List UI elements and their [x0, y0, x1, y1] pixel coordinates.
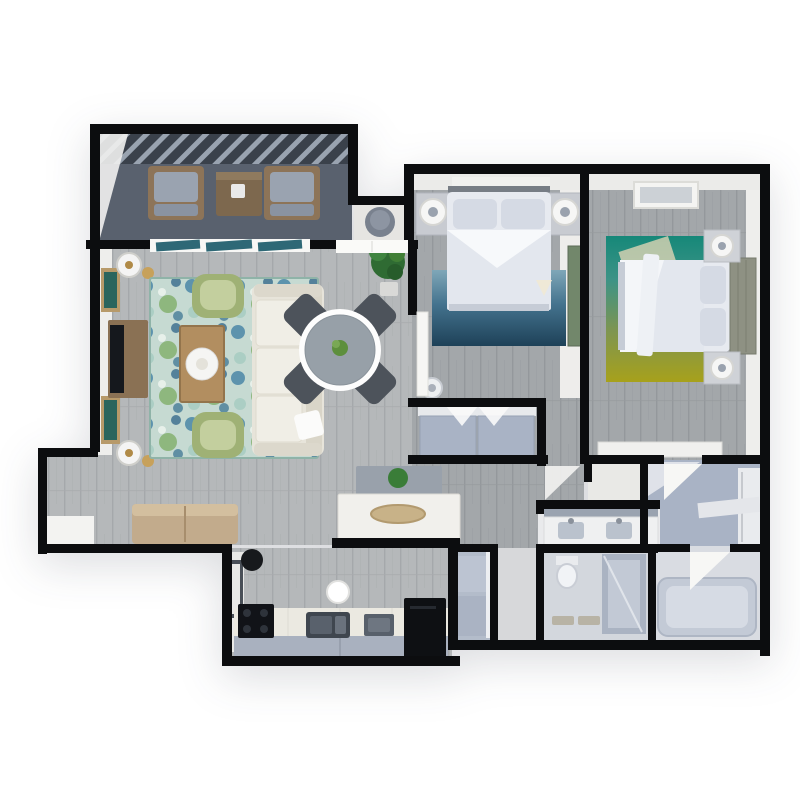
bed1-pillow-left: [453, 199, 497, 229]
bed1-foot-rail: [449, 304, 549, 311]
floor-lamp-2-core: [125, 449, 133, 457]
wall-art-1: [104, 272, 117, 308]
lamp-1-right-core: [560, 207, 570, 217]
refrigerator-handle: [410, 606, 436, 609]
bed1-wall-art: [568, 246, 581, 346]
wall-hall2-stub: [584, 460, 592, 482]
wall-alcove-top: [38, 448, 98, 457]
wall-pan-disc: [241, 549, 263, 571]
sofa-arm-top: [254, 284, 322, 297]
dining-centerpiece-2: [332, 340, 340, 348]
laundry-shelf-bottom: [454, 596, 488, 636]
wall-balcony-top: [90, 124, 358, 134]
wall-kitchen-right: [448, 540, 458, 648]
stove: [238, 604, 274, 638]
bed1-headboard-shelf: [452, 177, 550, 187]
tv-screen: [110, 325, 124, 393]
lamp-2-bottom-core: [718, 364, 726, 372]
lamp-1-left-core: [428, 207, 438, 217]
floor-plan-image: [0, 0, 800, 800]
vanity-faucet-1: [568, 518, 574, 524]
bed2-pillow-bottom: [700, 308, 726, 346]
skylight-glass: [640, 187, 692, 203]
patio-chair-left-seat: [154, 204, 198, 216]
burner-3: [243, 625, 251, 633]
wall-vanity-left-stub: [536, 500, 544, 514]
closet1-unit-right: [478, 416, 534, 456]
bar-placemat: [371, 505, 425, 523]
plant-leaf-4: [387, 264, 403, 280]
balcony-awning: [96, 134, 352, 164]
burner-2: [260, 609, 268, 617]
patio-chair-left-cushion: [154, 172, 198, 202]
patio-chair-right-cushion: [270, 172, 314, 202]
wall-art-2: [104, 400, 117, 440]
burner-4: [260, 625, 268, 633]
wall-bed2-bottom-right: [702, 455, 764, 464]
wall-bath1-right: [648, 544, 656, 648]
wall-bed1-left-upper: [404, 164, 414, 252]
wall-kitchen-left: [222, 544, 232, 666]
hall2-floor: [588, 462, 644, 506]
bed1-door-leaf: [417, 312, 428, 396]
wall-closet1-bottom: [408, 455, 548, 464]
wall-balcony-left: [90, 124, 100, 248]
accent-chair-top-cushion: [200, 280, 236, 310]
wall-alcove-left: [38, 448, 47, 554]
toilet-bowl: [557, 564, 577, 588]
bar-plant: [388, 468, 408, 488]
accent-chair-bottom-cushion: [200, 420, 236, 450]
burner-1: [243, 609, 251, 617]
wall-vanity-top: [536, 500, 660, 509]
nook-chair-cushion: [370, 210, 390, 230]
dish-rack-inner: [368, 618, 390, 632]
wall-bed1-left-mid: [408, 249, 417, 315]
bathtub-basin: [666, 586, 748, 628]
wall-closet1-top: [408, 398, 546, 407]
vanity-sink-1: [558, 522, 584, 539]
bed2-foot-rail: [618, 262, 625, 350]
floor-plan-svg: [0, 0, 800, 800]
patio-table-cup: [231, 184, 245, 198]
vanity-faucet-2: [616, 518, 622, 524]
bath-mat-1: [552, 616, 574, 625]
wall-bath2-top-right: [730, 544, 764, 552]
closet1-shelf-strip: [418, 406, 536, 416]
wall-bottom-left: [38, 544, 232, 553]
wall-bottom-corridor: [448, 640, 544, 650]
wall-bath1-top: [536, 544, 658, 553]
kitchen-ceiling-light: [327, 581, 349, 603]
wall-bath1-left: [536, 544, 544, 644]
bed2-pillow-top: [700, 266, 726, 304]
vanity-sink-2: [606, 522, 632, 539]
wall-kitchen-bottom: [222, 656, 460, 666]
patio-side-table-top: [216, 172, 262, 180]
wall-bed2-bottom-left: [588, 455, 664, 464]
lamp-2-top-core: [718, 242, 726, 250]
wall-bar-bottom: [332, 538, 460, 548]
floor-lamp-1-core: [125, 261, 133, 269]
wall-bedroom-separator: [580, 168, 589, 464]
laundry-shelf-top: [454, 556, 488, 592]
table-doily-core: [196, 358, 208, 370]
bed2-headboard: [730, 258, 756, 354]
plant-pot: [380, 282, 398, 296]
bath-mat-2: [578, 616, 600, 625]
wall-bottom-bath2: [648, 640, 770, 650]
wall-bottom-bath1: [536, 640, 660, 650]
closet1-unit-left: [420, 416, 476, 456]
alcove-ledge: [44, 516, 94, 546]
bed1-floor-vase-core: [428, 384, 436, 392]
kitchen-sink-board: [335, 616, 346, 634]
wall-balcony-right: [348, 124, 358, 204]
wall-laundry-right: [490, 544, 498, 644]
bed2-dresser: [598, 442, 722, 457]
kitchen-sink-basin: [310, 616, 332, 634]
sofa-arm-bottom: [254, 443, 322, 456]
wall-outer-right: [760, 164, 770, 656]
wall-living-left: [90, 240, 100, 452]
patio-chair-right-seat: [270, 204, 314, 216]
bed1-pillow-right: [501, 199, 545, 229]
